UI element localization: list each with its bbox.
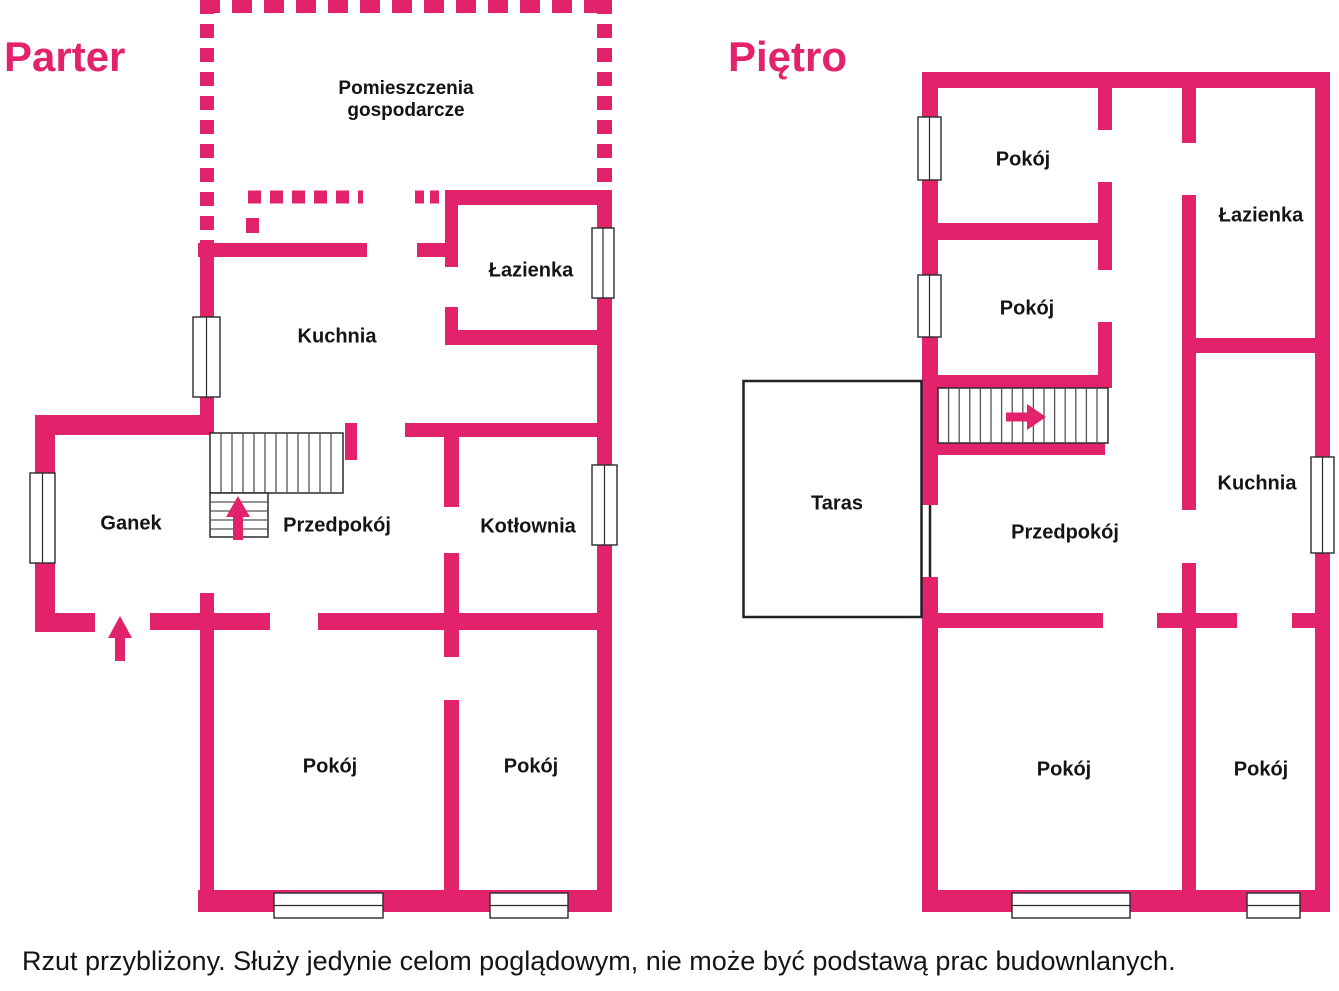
room-label-kuchnia-pietro: Kuchnia (1218, 473, 1297, 496)
room-label-pomieszczenia-line2: gospodarcze (338, 100, 473, 122)
window (193, 317, 220, 397)
room-label-kuchnia-parter: Kuchnia (298, 326, 377, 349)
room-label-pokoj-parter-lewy: Pokój (303, 756, 357, 779)
room-label-taras: Taras (811, 493, 863, 516)
room-label-pokoj-pietro-prawy: Pokój (1234, 759, 1288, 782)
room-label-ganek: Ganek (100, 513, 161, 536)
window (490, 893, 568, 918)
entry-arrow-icon (108, 616, 132, 661)
window (918, 117, 941, 180)
window (1012, 893, 1130, 918)
parter-walls (35, 190, 612, 912)
room-label-przedpokoj-parter: Przedpokój (283, 515, 391, 538)
parter-title: Parter (4, 33, 125, 81)
floorplan-page: Parter Piętro Pomieszczenia gospodarcze … (0, 0, 1339, 991)
window (592, 228, 614, 298)
room-label-pokoj-pietro-lewy: Pokój (1037, 759, 1091, 782)
room-label-lazienka-parter: Łazienka (489, 260, 573, 283)
room-label-pokoj-pietro-srodkowy: Pokój (1000, 298, 1054, 321)
window (592, 465, 617, 545)
floorplan-drawing (0, 0, 1339, 991)
window (1247, 893, 1300, 918)
window (918, 275, 941, 337)
window (274, 893, 383, 918)
pietro-stairs (938, 388, 1108, 443)
room-label-pomieszczenia: Pomieszczenia gospodarcze (338, 78, 473, 122)
room-label-pomieszczenia-line1: Pomieszczenia (338, 78, 473, 100)
pietro-title: Piętro (728, 33, 847, 81)
room-label-kotlownia: Kotłownia (480, 516, 576, 539)
window (1311, 457, 1334, 553)
room-label-przedpokoj-pietro: Przedpokój (1011, 522, 1119, 545)
room-label-lazienka-pietro: Łazienka (1219, 205, 1303, 228)
window (30, 473, 55, 563)
room-label-pokoj-pietro-gorny: Pokój (996, 149, 1050, 172)
disclaimer-text: Rzut przybliżony. Służy jedynie celom po… (22, 946, 1176, 977)
room-label-pokoj-parter-prawy: Pokój (504, 756, 558, 779)
